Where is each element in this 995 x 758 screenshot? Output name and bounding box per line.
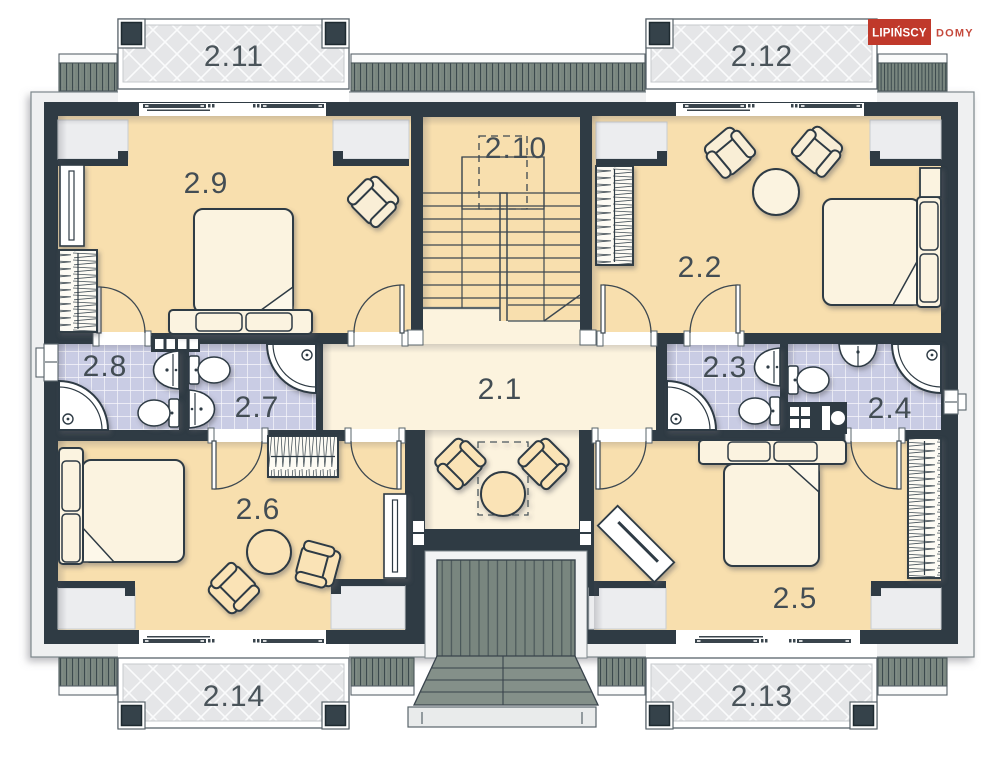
svg-text:2.10: 2.10 <box>485 132 547 165</box>
svg-text:2.1: 2.1 <box>478 373 523 406</box>
svg-text:2.4: 2.4 <box>868 392 913 425</box>
svg-text:2.3: 2.3 <box>703 351 748 384</box>
svg-text:2.9: 2.9 <box>184 167 229 200</box>
svg-text:2.7: 2.7 <box>235 391 280 424</box>
svg-text:2.14: 2.14 <box>203 680 265 713</box>
svg-text:DOMY: DOMY <box>936 28 974 40</box>
svg-text:2.8: 2.8 <box>83 350 128 383</box>
svg-text:2.5: 2.5 <box>773 582 818 615</box>
svg-text:LIPIŃSCY: LIPIŃSCY <box>872 27 927 40</box>
svg-text:2.13: 2.13 <box>731 680 793 713</box>
svg-text:2.11: 2.11 <box>204 40 264 73</box>
svg-text:2.6: 2.6 <box>236 493 281 526</box>
svg-text:2.12: 2.12 <box>731 40 793 73</box>
svg-text:2.2: 2.2 <box>678 251 723 284</box>
